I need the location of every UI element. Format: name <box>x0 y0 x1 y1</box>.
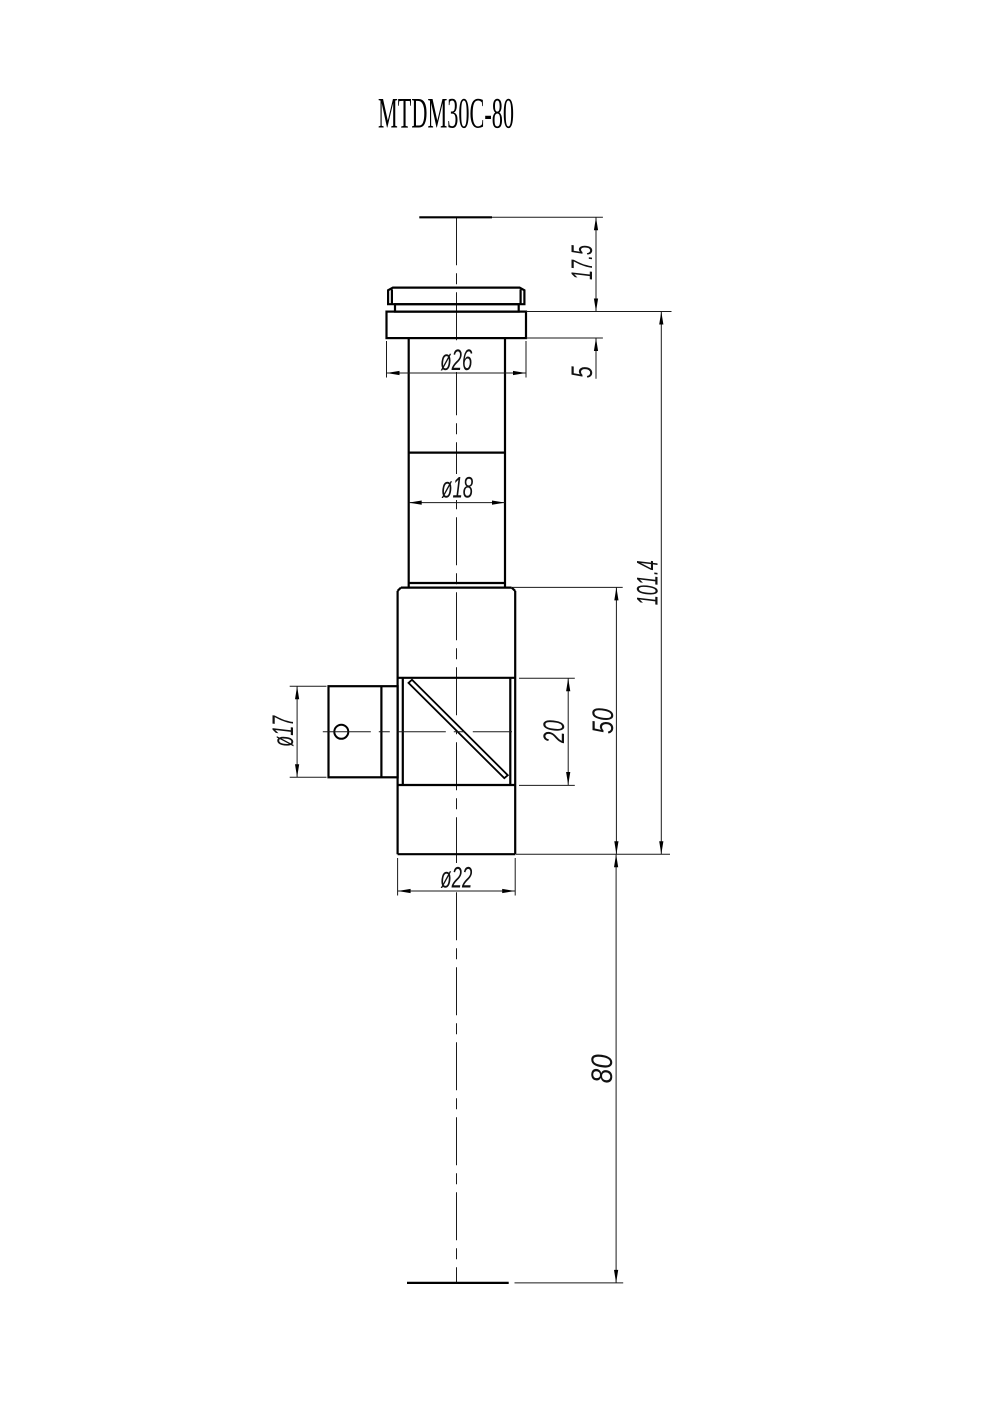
svg-text:ø17: ø17 <box>267 715 300 747</box>
svg-text:MTDM30C-80: MTDM30C-80 <box>378 91 514 138</box>
svg-text:101.4: 101.4 <box>632 560 665 605</box>
svg-text:80: 80 <box>586 1054 619 1083</box>
svg-text:ø22: ø22 <box>440 862 472 895</box>
svg-text:5: 5 <box>566 366 599 378</box>
svg-text:ø26: ø26 <box>440 344 472 377</box>
svg-text:50: 50 <box>587 708 620 734</box>
svg-text:20: 20 <box>538 720 571 744</box>
svg-text:17.5: 17.5 <box>566 245 599 280</box>
svg-text:ø18: ø18 <box>441 472 473 505</box>
